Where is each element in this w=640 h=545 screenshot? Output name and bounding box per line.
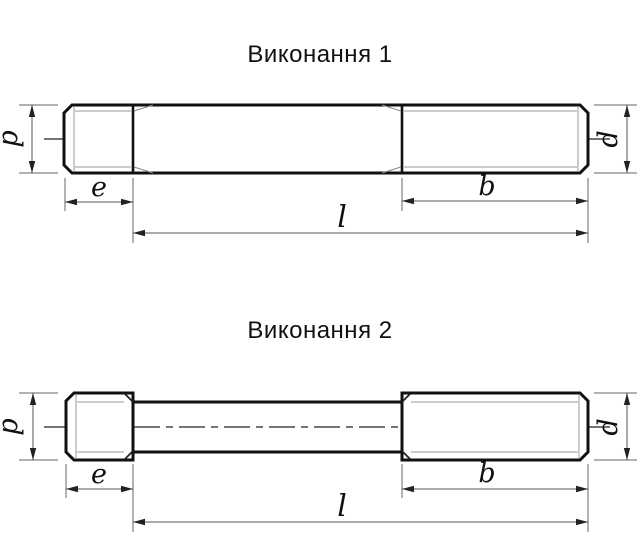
arrowhead-left xyxy=(133,519,145,525)
arrowhead-right xyxy=(121,199,133,205)
arrowhead-left xyxy=(133,230,145,236)
arrowhead-right xyxy=(576,519,588,525)
drawing1-dimension-d-right: d xyxy=(593,105,637,173)
drawing1-dimension-b: b xyxy=(402,171,588,243)
right-thread-outline xyxy=(402,393,588,460)
stud-outline xyxy=(64,105,588,173)
label-b: b xyxy=(478,458,495,489)
arrowhead-down xyxy=(30,448,36,460)
drawing1-stud-body xyxy=(44,105,612,173)
arrowhead-left xyxy=(66,486,78,492)
arrowhead-right xyxy=(576,486,588,492)
drawing1-dimension-l: l xyxy=(133,200,588,236)
drawing2-dimension-e: e xyxy=(66,459,133,532)
drawing1-dimension-e: e xyxy=(65,172,133,243)
label-d-left: d xyxy=(0,130,27,147)
arrowhead-right xyxy=(576,230,588,236)
arrowhead-down xyxy=(624,448,630,460)
drawing1-stud-version1: d d e b xyxy=(0,0,640,280)
label-e: e xyxy=(91,172,107,203)
label-d-right: d xyxy=(593,418,624,435)
label-b: b xyxy=(478,171,495,202)
drawing2-stud-version2: d d e b xyxy=(0,280,640,545)
technical-drawing-page: Виконання 1 d xyxy=(0,0,640,545)
arrowhead-right xyxy=(121,486,133,492)
label-e: e xyxy=(91,459,107,490)
drawing2-dimension-d-right: d xyxy=(593,393,637,460)
arrowhead-up xyxy=(29,105,35,117)
arrowhead-up xyxy=(624,105,630,117)
arrowhead-up xyxy=(624,393,630,405)
label-l: l xyxy=(337,489,347,524)
label-l: l xyxy=(337,200,347,235)
drawing2-dimension-b: b xyxy=(402,458,588,532)
label-d-left: d xyxy=(0,418,27,435)
arrowhead-up xyxy=(30,393,36,405)
arrowhead-right xyxy=(576,198,588,204)
label-d-right: d xyxy=(593,130,624,147)
arrowhead-left xyxy=(402,486,414,492)
arrowhead-left xyxy=(402,198,414,204)
arrowhead-down xyxy=(624,161,630,173)
arrowhead-left xyxy=(65,199,77,205)
arrowhead-down xyxy=(29,161,35,173)
drawing2-dimension-l: l xyxy=(133,489,588,525)
drawing2-stud-body xyxy=(44,393,612,460)
